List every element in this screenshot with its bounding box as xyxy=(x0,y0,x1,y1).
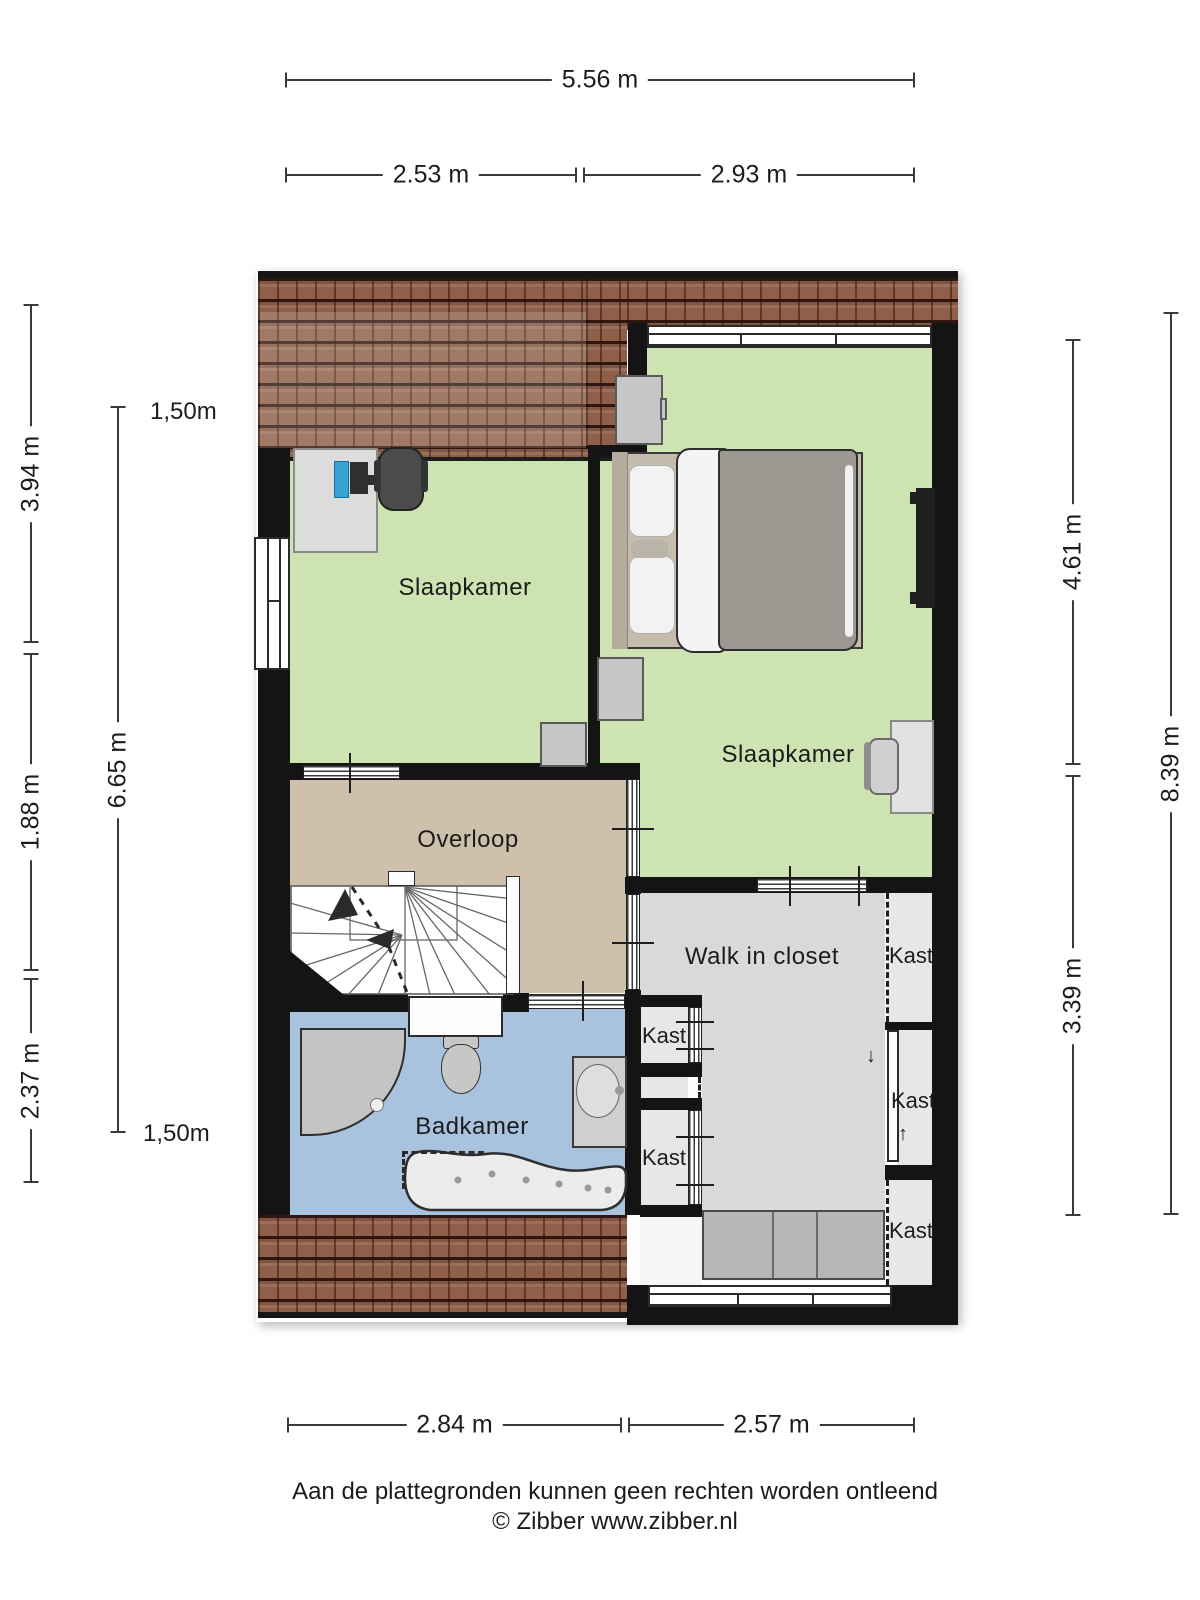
roof-seam xyxy=(586,278,588,448)
wall-divider-block xyxy=(625,877,641,894)
dashed-partition-kast-left xyxy=(698,1077,701,1098)
sink-basin xyxy=(576,1064,620,1118)
wall-kast-right-mid2 xyxy=(885,1165,932,1180)
roof-shade-overlay xyxy=(260,312,586,448)
landing-label: Overloop xyxy=(417,826,518,854)
wall-left-upper xyxy=(258,448,290,539)
dim-top-total: 5.56 m xyxy=(285,79,915,81)
staircase xyxy=(290,885,514,995)
kast-left-bottom-label: Kast xyxy=(642,1145,686,1171)
bathtub-screen-dashed xyxy=(402,1151,484,1154)
kast-right-bottom-label: Kast xyxy=(889,1218,933,1244)
desk-chair-right xyxy=(869,738,899,795)
footer-copyright: © Zibber www.zibber.nl xyxy=(15,1508,1200,1536)
bathtub-screen-dashed xyxy=(402,1151,405,1189)
wall-right xyxy=(932,323,958,1325)
height-marker-bottom: 1,50m xyxy=(143,1120,210,1148)
footer-disclaimer: Aan de plattegronden kunnen geen rechten… xyxy=(15,1478,1200,1506)
dim-right-inner-upper: 4.61 m xyxy=(1072,339,1074,765)
dim-bottom-right: 2.57 m xyxy=(628,1424,915,1426)
roof-bottom-left xyxy=(258,1215,627,1318)
opening-bedroom-left-door xyxy=(303,765,400,779)
wall-south xyxy=(627,1307,958,1325)
wardrobe-cabinets xyxy=(702,1210,885,1280)
bedroom-right-label: Slaapkamer xyxy=(721,741,854,769)
bed-duvet xyxy=(718,449,858,651)
dresser-handle xyxy=(660,398,667,420)
opening-bedroom-closetroom xyxy=(757,878,867,892)
bathroom-label: Badkamer xyxy=(415,1113,528,1141)
sink-tap xyxy=(615,1086,624,1095)
dim-right-inner-lower: 3.39 m xyxy=(1072,775,1074,1216)
wall-wardrobe xyxy=(916,488,935,608)
opening-tick xyxy=(789,866,791,906)
kast-left-gap-floor xyxy=(640,1077,688,1098)
desk-chair-back xyxy=(864,742,871,790)
pc-tower xyxy=(334,461,349,498)
shower-drain xyxy=(370,1098,384,1112)
opening-tick xyxy=(349,753,351,793)
opening-tick xyxy=(858,866,860,906)
wall-kast-left-bottom xyxy=(640,1205,702,1217)
bathtub xyxy=(396,1144,630,1216)
opening-tick xyxy=(676,1136,714,1138)
nightstand xyxy=(597,657,644,721)
wall-kast-left-top xyxy=(640,995,702,1007)
pillow xyxy=(629,465,675,537)
floorplan-page: ↓ ↑ xyxy=(0,0,1200,1600)
office-chair-arm xyxy=(374,460,381,492)
wall-kast-right-mid1 xyxy=(885,1022,932,1030)
wall-left-lower xyxy=(258,668,290,1215)
dresser-right-bedroom xyxy=(615,375,663,445)
opening-tick xyxy=(612,828,654,830)
pillow-small xyxy=(631,540,668,558)
closet-room-floor-b xyxy=(702,1006,885,1210)
kast-right-middle-label: Kast xyxy=(891,1088,935,1114)
office-chair-arm xyxy=(421,460,428,492)
dim-top-left: 2.53 m xyxy=(285,174,577,176)
opening-tick xyxy=(582,981,584,1021)
dim-right-outer: 8.39 m xyxy=(1170,312,1172,1215)
office-chair xyxy=(378,447,424,511)
opening-tick xyxy=(676,1184,714,1186)
toilet-bowl xyxy=(441,1044,481,1094)
dim-top-right: 2.93 m xyxy=(583,174,915,176)
wall-landing-south-pier xyxy=(503,993,529,1012)
window-west xyxy=(254,537,290,670)
dim-left-inner: 6.65 m xyxy=(117,406,119,1133)
dim-left-middle: 1.88 m xyxy=(30,653,32,971)
opening-kast-left-bottom-door xyxy=(688,1110,702,1205)
wall-south-window-pier-left xyxy=(627,1285,648,1307)
bathroom-door xyxy=(408,996,503,1037)
wall-kast-left-mid2 xyxy=(640,1098,702,1110)
window-north xyxy=(647,325,932,348)
window-south xyxy=(648,1285,892,1307)
kast-left-top-label: Kast xyxy=(642,1023,686,1049)
bed-headboard xyxy=(612,452,628,649)
height-marker-top: 1,50m xyxy=(150,398,217,426)
wall-kast-left-mid1 xyxy=(640,1063,702,1077)
dresser-left-bedroom xyxy=(540,722,587,767)
roof-top-band xyxy=(627,271,958,330)
dim-bottom-left: 2.84 m xyxy=(287,1424,622,1426)
dim-left-upper: 3.94 m xyxy=(30,304,32,643)
stairs-balustrade xyxy=(506,876,520,994)
closet-room-recess xyxy=(640,1217,702,1285)
wall-bedroom-divider xyxy=(588,445,600,770)
wall-wardrobe-tab xyxy=(910,592,916,604)
opening-kast-left-top-door xyxy=(688,1007,702,1063)
wall-south-window-pier-right xyxy=(892,1285,932,1307)
arrow-up-icon: ↑ xyxy=(898,1124,908,1144)
opening-landing-bathroom xyxy=(528,994,625,1009)
bed-mattress-edge xyxy=(845,465,853,637)
wall-landing-south xyxy=(258,993,408,1012)
walk-in-closet-label: Walk in closet xyxy=(685,943,839,971)
pillow xyxy=(629,556,675,634)
kast-right-top-label: Kast xyxy=(889,943,933,969)
dim-left-lower: 2.37 m xyxy=(30,978,32,1183)
wall-wardrobe-tab xyxy=(910,492,916,504)
bedroom-left-label: Slaapkamer xyxy=(398,574,531,602)
bedroom-right-floor-a xyxy=(647,348,932,452)
opening-tick xyxy=(612,942,654,944)
stairs-top-step xyxy=(388,871,415,886)
arrow-down-icon: ↓ xyxy=(866,1046,876,1066)
